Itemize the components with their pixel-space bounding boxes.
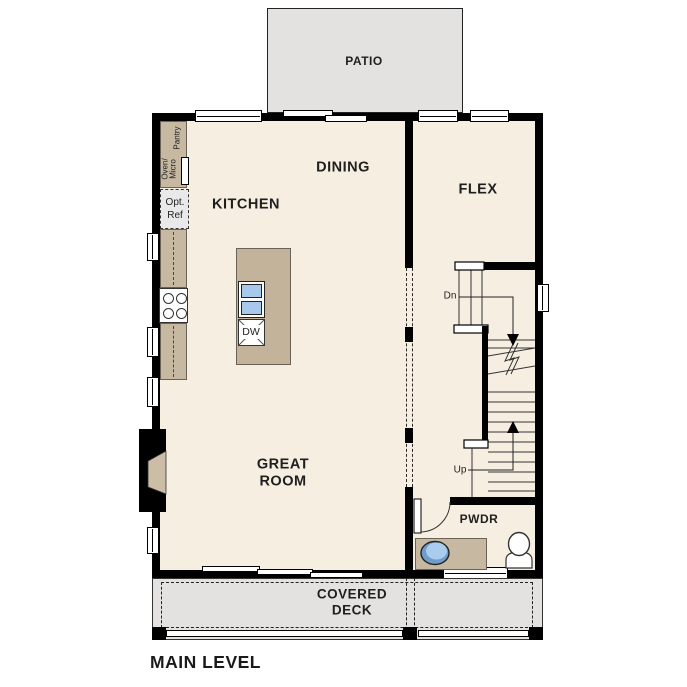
wall-pwdr-top xyxy=(450,497,535,505)
covered-deck-label: COVERED DECK xyxy=(317,586,387,617)
kitchen-label: KITCHEN xyxy=(212,197,280,214)
fireplace xyxy=(139,429,166,512)
window-right-1 xyxy=(537,284,549,312)
great-room-label: GREAT ROOM xyxy=(257,456,309,489)
pwdr-label: PWDR xyxy=(460,513,499,527)
wall-divider-dashed-right xyxy=(412,268,413,487)
burner-1 xyxy=(163,293,174,304)
burner-3 xyxy=(163,308,174,319)
floor-plan: PATIO DINING KITCHEN FLEX GREAT ROOM PWD… xyxy=(0,0,687,687)
dining-label: DINING xyxy=(316,160,370,177)
burner-4 xyxy=(176,308,187,319)
greatroom-slider-panel-1 xyxy=(202,566,260,572)
window-top-1 xyxy=(195,110,262,122)
flex-label: FLEX xyxy=(458,182,497,199)
wall-divider-chunk-1 xyxy=(405,327,413,342)
oven-micro-label: Oven/ Micro xyxy=(162,158,179,179)
wall-divider-solid-bottom xyxy=(405,487,413,570)
window-left-3 xyxy=(147,377,159,407)
wall-divider-solid-top xyxy=(405,121,413,268)
wall-divider-dashed-left xyxy=(406,268,407,487)
stairs-down-label: Dn xyxy=(444,290,457,302)
window-left-1 xyxy=(147,233,159,261)
sink-basin-2 xyxy=(241,301,262,315)
deck-edge-band-1 xyxy=(166,630,403,637)
window-top-3 xyxy=(470,110,509,122)
deck-post-1 xyxy=(152,627,166,640)
pantry-label: Pantry xyxy=(172,126,181,149)
dishwasher-label: DW xyxy=(242,326,260,338)
sink-basin-1 xyxy=(241,284,262,298)
wall-flex-bottom xyxy=(483,262,543,270)
burner-2 xyxy=(176,293,187,304)
counter-centerline-2 xyxy=(173,326,174,377)
window-left-2 xyxy=(147,327,159,357)
greatroom-slider-panel-2 xyxy=(257,569,313,575)
patio-label: PATIO xyxy=(345,55,382,69)
counter-centerline-1 xyxy=(173,232,174,285)
microwave xyxy=(181,157,189,185)
window-left-4 xyxy=(147,527,159,554)
deck-edge-band-2 xyxy=(418,630,529,637)
window-top-2 xyxy=(418,110,458,122)
opt-ref-label: Opt. Ref xyxy=(166,196,185,222)
wall-divider-chunk-2 xyxy=(405,428,413,443)
pwdr-vanity xyxy=(415,538,487,570)
stairs-up-label: Up xyxy=(454,464,467,476)
deck-post-3 xyxy=(529,627,543,640)
deck-post-2 xyxy=(403,627,417,640)
main-level-title: MAIN LEVEL xyxy=(150,652,261,673)
patio-slider-panel-2 xyxy=(325,115,367,122)
